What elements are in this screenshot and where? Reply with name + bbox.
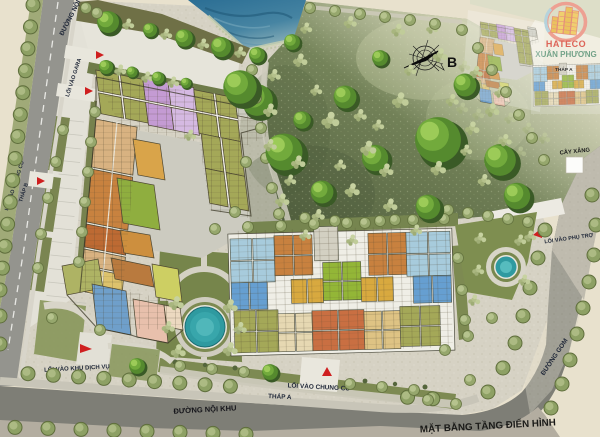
svg-text:B: B xyxy=(447,54,457,70)
svg-text:HATECO: HATECO xyxy=(546,39,586,49)
svg-text:XUÂN PHƯƠNG: XUÂN PHƯƠNG xyxy=(535,50,596,59)
svg-text:THÁP A: THÁP A xyxy=(555,66,573,73)
